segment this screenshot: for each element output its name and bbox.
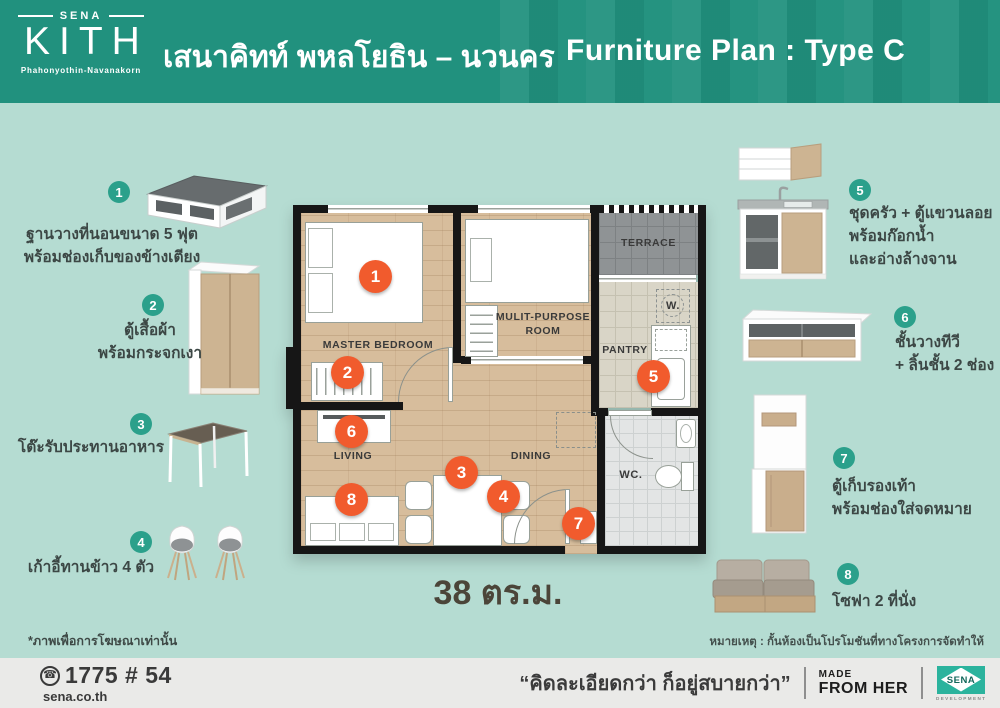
chairs-image (162, 524, 254, 584)
room-label-master-bedroom: MASTER BEDROOM (303, 339, 453, 353)
item-2-badge: 2 (142, 294, 164, 316)
plan-toilet-tank (681, 462, 694, 491)
made-from-her-logo: MADE FROM HER (819, 670, 908, 697)
plan-wc-sink (676, 419, 696, 448)
terrace-railing (599, 205, 698, 213)
plan-marker-3: 3 (445, 456, 478, 489)
plan-chair-1 (405, 481, 432, 510)
wall-pantry-wc-b (651, 408, 698, 416)
item-4-label: เก้าอี้ทานข้าว 4 ตัว (16, 557, 166, 580)
room-label-multi-purpose: MULIT-PURPOSE ROOM (489, 311, 597, 338)
project-title: เสนาคิทท์ พหลโยธิน – นวนคร (163, 34, 555, 81)
plan-marker-1: 1 (359, 260, 392, 293)
bed-base-image (138, 170, 270, 232)
item-6-badge: 6 (894, 306, 916, 328)
item-6-label: ชั้นวางทีวี + ลิ้นชั้น 2 ช่อง (895, 332, 994, 378)
logo-name: KITH (24, 22, 144, 63)
item-1-label: ฐานวางที่นอนขนาด 5 ฟุต พร้อมช่องเก็บของข… (12, 224, 212, 270)
item-1-badge: 1 (108, 181, 130, 203)
plan-marker-7: 7 (562, 507, 595, 540)
plan-marker-8: 8 (335, 483, 368, 516)
room-label-terrace: TERRACE (599, 237, 698, 251)
sena-development-logo: SENA DEVELOPMENT (936, 666, 986, 701)
wall-bottom-a (293, 546, 565, 554)
plan-pillow-2 (308, 273, 333, 313)
item-8-badge: 8 (837, 563, 859, 585)
wall-bottom-b (597, 546, 706, 554)
window-master (328, 205, 428, 213)
footer-divider-1 (804, 667, 806, 699)
tv-shelf-image (739, 305, 873, 369)
plan-chair-2 (405, 515, 432, 544)
plan-marker-2: 2 (331, 356, 364, 389)
footer-divider-2 (921, 667, 923, 699)
item-3-badge: 3 (130, 413, 152, 435)
header-band: SENA KITH Phahonyothin-Navanakorn เสนาคิ… (0, 0, 1000, 103)
room-label-pantry: PANTRY (599, 344, 651, 358)
item-5-badge: 5 (849, 179, 871, 201)
plan-pillow-3 (470, 238, 492, 282)
remark-note: หมายเหตุ : กั้นห้องเป็นโปรโมชันที่ทางโคร… (709, 633, 984, 651)
room-label-living: LIVING (303, 450, 403, 464)
plan-toilet-bowl (655, 465, 682, 488)
sofa-image (709, 556, 819, 618)
entrance-floor (565, 546, 597, 554)
disclaimer-note: *ภาพเพื่อการโฆษณาเท่านั้น (28, 631, 177, 651)
item-7-label: ตู้เก็บรองเท้า พร้อมช่องใส่จดหมาย (832, 476, 972, 522)
mpr-sliding-door (471, 356, 583, 364)
unit-area: 38 ตร.ม. (378, 565, 618, 619)
website-link[interactable]: sena.co.th (43, 689, 107, 704)
door-leaf-master (448, 347, 453, 402)
plan-pillow-1 (308, 228, 333, 268)
plan-marker-6: 6 (335, 415, 368, 448)
item-4-badge: 4 (130, 531, 152, 553)
dining-table-image (163, 418, 251, 488)
footer-band: ☎ 1775 # 54 sena.co.th “คิดละเอียดกว่า ก… (0, 658, 1000, 708)
item-7-badge: 7 (833, 447, 855, 469)
plan-title: Furniture Plan : Type C (566, 34, 905, 68)
phone-icon: ☎ (40, 666, 60, 686)
item-5-label: ชุดครัว + ตู้แขวนลอย พร้อมก๊อกน้ำ และอ่า… (849, 203, 993, 272)
brand-slogan: “คิดละเอียดกว่า ก็อยู่สบายกว่า” (519, 667, 790, 699)
plan-dashed-unit (556, 412, 596, 448)
room-label-wc: WC. (608, 468, 654, 482)
plan-marker-4: 4 (487, 480, 520, 513)
shoe-cabinet-image (746, 393, 812, 537)
room-label-dining: DINING (481, 450, 581, 464)
logo-location: Phahonyothin-Navanakorn (18, 66, 144, 75)
sena-diamond-icon: SENA (937, 666, 985, 694)
poster: SENA KITH Phahonyothin-Navanakorn เสนาคิ… (0, 0, 1000, 708)
footer-right-group: “คิดละเอียดกว่า ก็อยู่สบายกว่า” MADE FRO… (519, 658, 986, 708)
wall-left (293, 205, 301, 554)
item-2-label: ตู้เสื้อผ้า พร้อมกระจกเงา (70, 320, 230, 366)
wall-mb-mpr (453, 213, 461, 363)
item-8-label: โซฟา 2 ที่นั่ง (832, 591, 916, 614)
phone-number: 1775 # 54 (65, 662, 172, 689)
floor-plan: W. MASTER BEDROOM MULIT-PURPOSE ROOM TER… (293, 205, 706, 560)
phone-row: ☎ 1775 # 54 (40, 662, 172, 689)
wall-right (698, 205, 706, 554)
window-mpr (478, 205, 590, 213)
plan-marker-5: 5 (637, 360, 670, 393)
wall-cabinet-image (737, 142, 823, 184)
sena-kith-logo: SENA KITH Phahonyothin-Navanakorn (18, 10, 144, 75)
wall-mb-bottom (301, 402, 403, 410)
item-3-label: โต๊ะรับประทานอาหาร (16, 437, 166, 460)
wall-wc-left (597, 416, 605, 546)
kitchen-counter-image (736, 186, 830, 284)
terrace-sliding-door (599, 275, 696, 282)
wall-left-bump (286, 347, 293, 409)
door-leaf-wc (608, 410, 652, 416)
room-label-washer: W. (656, 299, 690, 313)
